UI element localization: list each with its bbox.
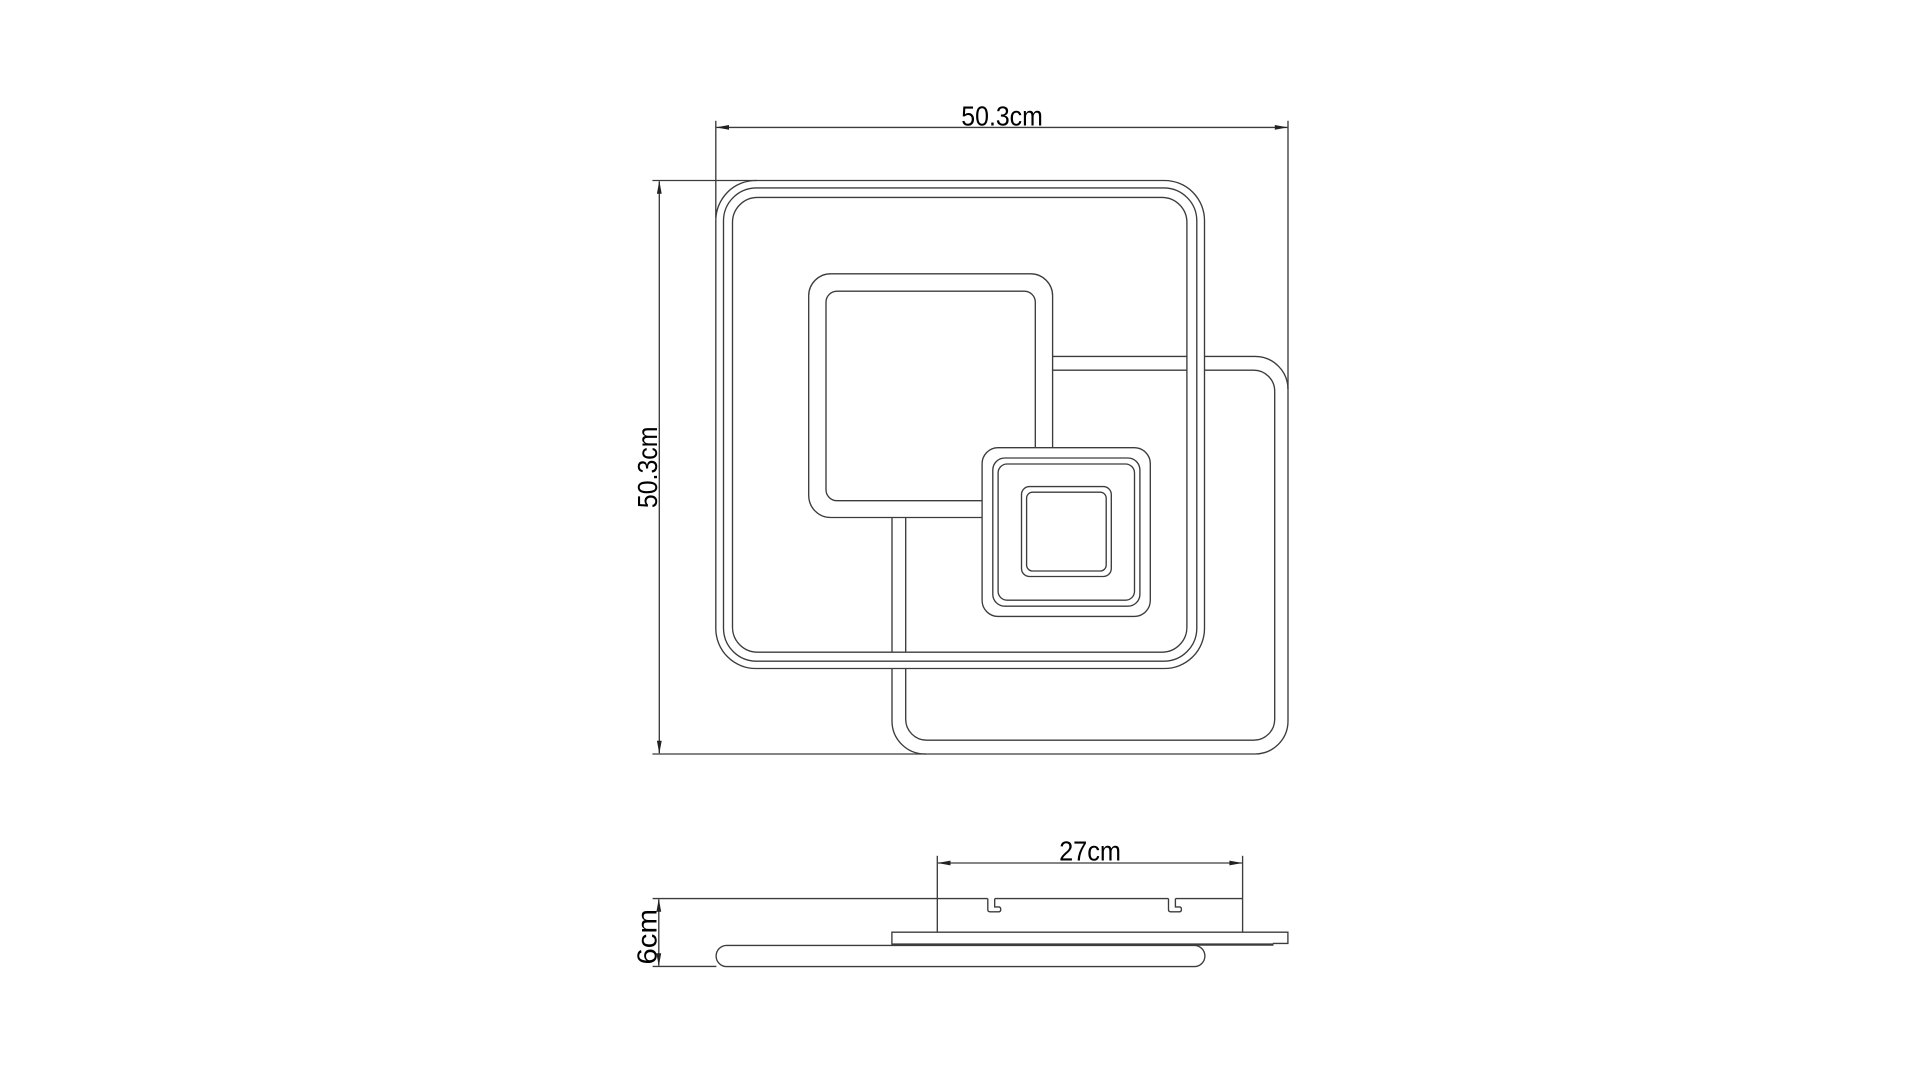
svg-text:6cm: 6cm xyxy=(631,909,662,964)
svg-text:50.3cm: 50.3cm xyxy=(632,427,663,509)
svg-text:27cm: 27cm xyxy=(1059,835,1121,866)
svg-text:50.3cm: 50.3cm xyxy=(961,100,1043,131)
